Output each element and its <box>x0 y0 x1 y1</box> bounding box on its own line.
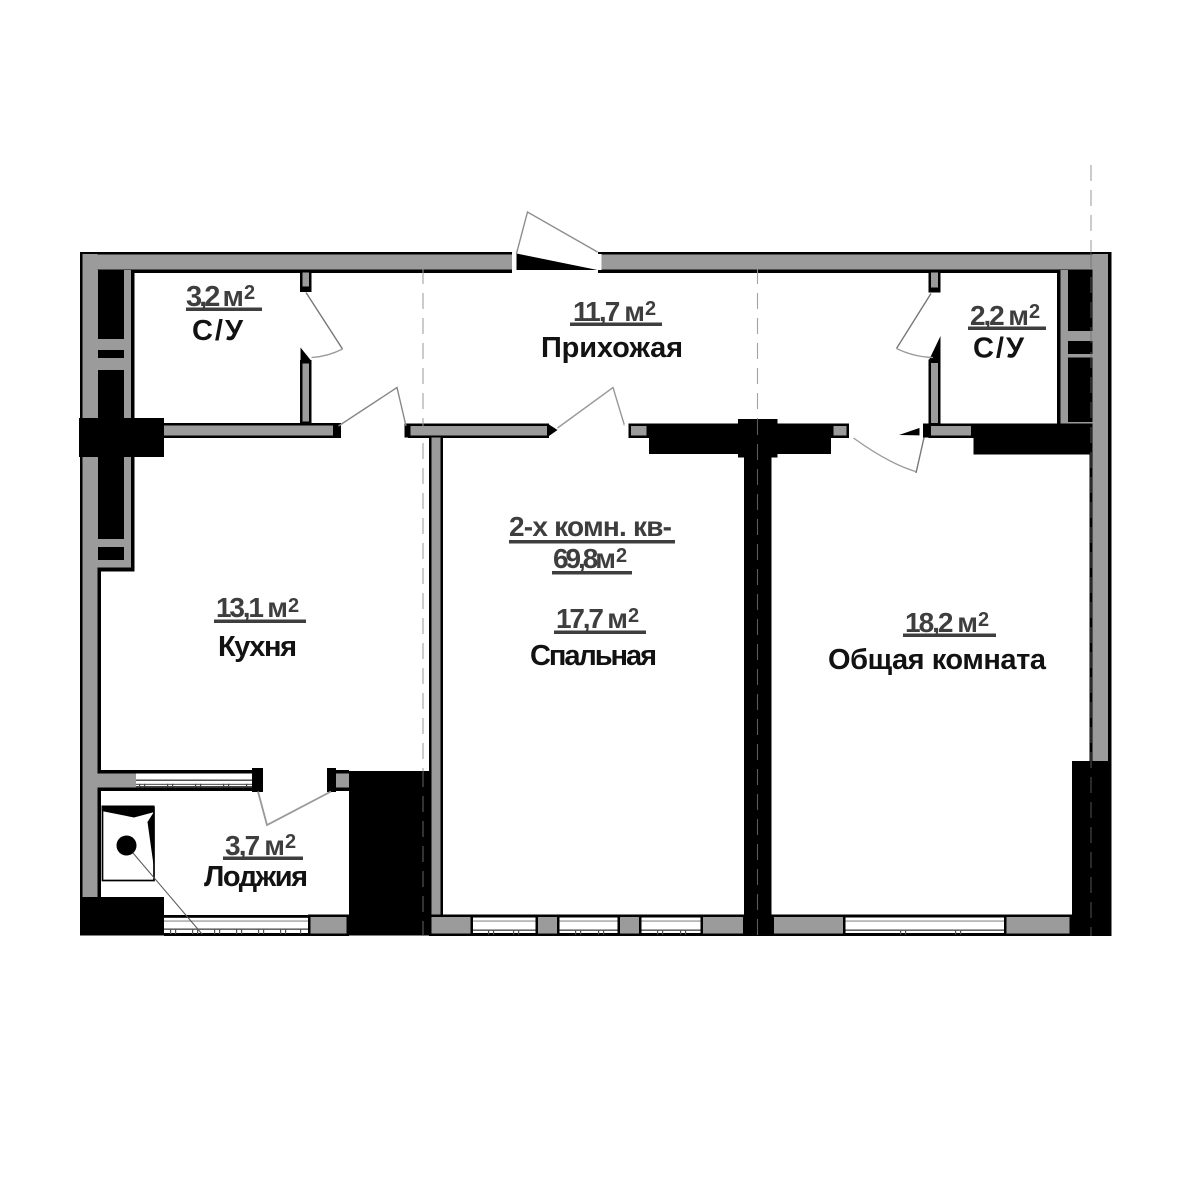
svg-text:13,1 м: 13,1 м <box>216 592 288 623</box>
svg-text:2: 2 <box>628 605 639 627</box>
svg-text:2: 2 <box>978 609 989 631</box>
svg-text:2: 2 <box>288 595 299 617</box>
svg-text:Прихожая: Прихожая <box>541 332 683 364</box>
svg-text:Спальная: Спальная <box>530 640 657 672</box>
svg-text:17,7 м: 17,7 м <box>556 603 628 634</box>
svg-text:18,2 м: 18,2 м <box>905 607 978 638</box>
svg-text:2-х комн. кв-: 2-х комн. кв- <box>509 511 672 542</box>
svg-text:2: 2 <box>285 831 296 853</box>
svg-text:2: 2 <box>244 282 255 304</box>
svg-text:3,7 м: 3,7 м <box>225 830 285 861</box>
svg-text:Кухня: Кухня <box>218 631 297 663</box>
svg-text:Общая комната: Общая комната <box>828 644 1047 676</box>
svg-text:2,2 м: 2,2 м <box>970 300 1029 331</box>
svg-text:Лоджия: Лоджия <box>204 861 308 893</box>
svg-text:С/У: С/У <box>192 315 244 347</box>
svg-text:2: 2 <box>616 545 627 567</box>
svg-text:С/У: С/У <box>973 333 1025 365</box>
svg-text:2: 2 <box>1029 301 1040 323</box>
svg-text:69,8м: 69,8м <box>553 543 616 574</box>
svg-text:11,7 м: 11,7 м <box>573 296 645 327</box>
svg-text:2: 2 <box>645 298 656 320</box>
